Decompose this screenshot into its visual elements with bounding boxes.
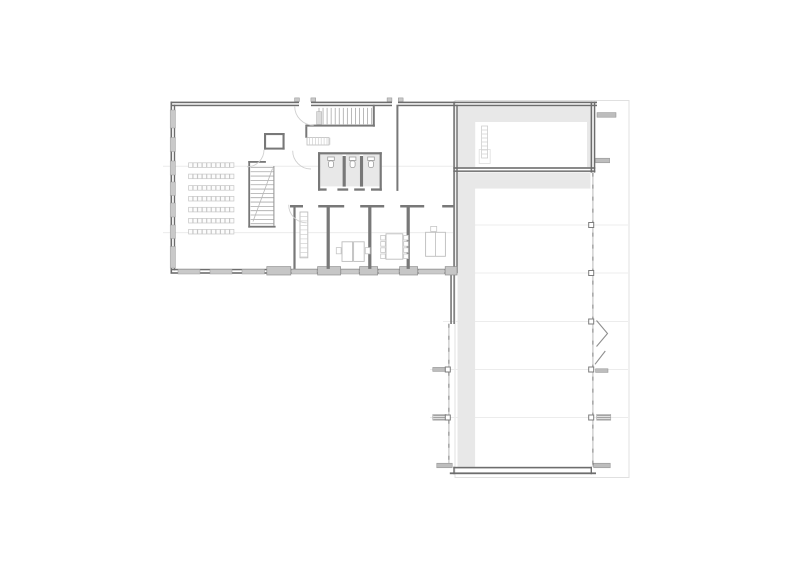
facade-pier-shape: [445, 267, 457, 275]
auditorium-seat-row-shape: [230, 229, 234, 234]
auditorium-seat-row-shape: [207, 196, 211, 201]
auditorium-seat-row-shape: [221, 186, 225, 191]
exterior-wall-shape: [450, 472, 596, 474]
auditorium-seat-row-shape: [221, 207, 225, 212]
exterior-wall-shape: [450, 271, 452, 324]
auditorium-seat-row-shape: [212, 196, 216, 201]
auditorium-seat-row-shape: [216, 174, 220, 179]
interior-wall-shape: [373, 105, 375, 127]
exterior-wall-shape: [398, 102, 597, 104]
interior-wall-shape: [318, 188, 327, 190]
floor-plan-page: [0, 0, 800, 566]
auditorium-seat-row-shape: [216, 218, 220, 223]
structural-column-shape: [589, 319, 594, 324]
interior-wall-shape: [360, 205, 384, 208]
auditorium-seat-row-shape: [216, 207, 220, 212]
interior-wall-shape: [318, 152, 320, 191]
auditorium-seat-row-shape: [207, 218, 211, 223]
auditorium-seat-row-shape: [202, 207, 206, 212]
interior-wall-shape: [248, 161, 250, 228]
auditorium-seat-row: [189, 163, 234, 234]
auditorium-seat-row-shape: [207, 229, 211, 234]
auditorium-seat-row-shape: [198, 218, 202, 223]
interior-wall-shape: [318, 152, 382, 154]
exterior-wall-shape: [453, 167, 595, 169]
auditorium-seat-row-shape: [202, 174, 206, 179]
auditorium-seat-row-shape: [221, 218, 225, 223]
facade-stub-shape: [597, 113, 616, 118]
auditorium-seat-row-shape: [221, 196, 225, 201]
exterior-wall-shape: [453, 271, 454, 324]
exterior-wall-shape: [311, 102, 392, 104]
toilet-tank: [328, 157, 375, 160]
auditorium-seat-row-shape: [221, 163, 225, 168]
interior-wall-shape: [318, 205, 344, 208]
auditorium-seat-row-shape: [221, 229, 225, 234]
interior-wall-shape: [343, 156, 346, 187]
auditorium-seat-row-shape: [230, 196, 234, 201]
stair-newel-shape: [317, 112, 322, 125]
toilet-bowl-shape: [329, 161, 334, 168]
auditorium-seat-row-shape: [193, 196, 197, 201]
furniture-shape: [354, 242, 365, 262]
auditorium-seat-row-shape: [193, 186, 197, 191]
auditorium-seat-row-shape: [230, 186, 234, 191]
floor-shading-inset: [475, 122, 587, 167]
auditorium-seat-row-shape: [202, 163, 206, 168]
auditorium-seat-row-shape: [230, 218, 234, 223]
auditorium-seat-row-shape: [212, 207, 216, 212]
auditorium-seat-row-shape: [189, 186, 193, 191]
facade-stub-shape: [437, 463, 452, 468]
exterior-wall-shape: [453, 102, 455, 274]
auditorium-seat-row-shape: [230, 207, 234, 212]
chair-shape: [381, 242, 386, 247]
facade-stub-shape: [433, 367, 445, 371]
interior-wall-shape: [290, 205, 303, 208]
structural-column-shape: [589, 367, 594, 372]
auditorium-seat-row-shape: [225, 174, 229, 179]
door-swing-arc: [247, 106, 314, 223]
furniture-shape: [342, 242, 353, 262]
auditorium-seat-row-shape: [212, 218, 216, 223]
window-shape: [419, 269, 445, 274]
auditorium-seat-row-shape: [189, 163, 193, 168]
structural-column-shape: [445, 415, 450, 420]
auditorium-seat-row-shape: [225, 163, 229, 168]
auditorium-seat-row-shape: [202, 229, 206, 234]
auditorium-seat-row-shape: [221, 174, 225, 179]
chair-shape: [404, 254, 409, 259]
auditorium-seat-row-shape: [230, 163, 234, 168]
window-shape: [379, 269, 400, 274]
window-shape: [292, 269, 318, 274]
window-shape: [170, 182, 175, 196]
exterior-wall-shape: [453, 467, 592, 469]
floor-shading-shape: [458, 189, 476, 467]
exterior-wall-shape: [591, 102, 593, 173]
auditorium-seat-row-shape: [189, 218, 193, 223]
interior-wall-shape: [337, 188, 348, 190]
stair-newel: [317, 112, 322, 125]
entrance-tab-shape: [398, 98, 403, 102]
window-shape: [170, 247, 175, 269]
interior-wall-shape: [264, 133, 285, 135]
toilet-tank-shape: [349, 157, 356, 160]
auditorium-seat-row-shape: [189, 174, 193, 179]
interior-wall-shape: [368, 208, 371, 269]
door-leaf-diagonal-shape: [595, 351, 605, 364]
structural-column-shape: [445, 367, 450, 372]
chair-shape: [381, 254, 386, 259]
auditorium-seat-row-shape: [198, 163, 202, 168]
window-shape: [170, 225, 175, 239]
interior-wall-shape: [380, 152, 382, 191]
auditorium-seat-row-shape: [198, 174, 202, 179]
entrance-tab-shape: [387, 98, 392, 102]
auditorium-seat-row-shape: [212, 174, 216, 179]
auditorium-seat-row-shape: [225, 196, 229, 201]
interior-wall-shape: [396, 105, 398, 191]
auditorium-seat-row-shape: [198, 229, 202, 234]
exterior-wall-shape: [171, 105, 300, 107]
toilet-tank-shape: [368, 157, 375, 160]
structural-column-shape: [589, 223, 594, 228]
auditorium-seat-row-shape: [202, 218, 206, 223]
window-shape: [170, 203, 175, 217]
auditorium-seat-row-shape: [230, 174, 234, 179]
facade-pier-shape: [267, 267, 291, 275]
floor-shading-shape: [458, 172, 591, 188]
window-shape: [170, 110, 175, 128]
auditorium-seat-row-shape: [193, 207, 197, 212]
auditorium-seat-row-shape: [216, 186, 220, 191]
chair-shape: [336, 248, 341, 254]
structural-column-shape: [589, 415, 594, 420]
auditorium-seat-row-shape: [198, 186, 202, 191]
exterior-wall-shape: [453, 170, 595, 172]
auditorium-seat-row-shape: [225, 218, 229, 223]
entrance-tab: [295, 98, 403, 102]
auditorium-seat-row-shape: [207, 163, 211, 168]
auditorium-seat-row-shape: [193, 163, 197, 168]
auditorium-seat-row-shape: [212, 229, 216, 234]
interior-wall-shape: [305, 127, 307, 138]
chair-shape: [404, 235, 409, 240]
facade-stub-shape: [595, 158, 609, 163]
interior-wall-shape: [248, 226, 275, 228]
chair-shape: [381, 248, 386, 253]
interior-wall-shape: [371, 188, 382, 190]
auditorium-seat-row-shape: [207, 186, 211, 191]
auditorium-seat-row-shape: [189, 229, 193, 234]
interior-wall-shape: [264, 148, 285, 150]
exterior-wall-shape: [456, 105, 457, 274]
interior-wall-shape: [354, 188, 365, 190]
auditorium-seat-row-shape: [225, 207, 229, 212]
auditorium-seat-row-shape: [193, 229, 197, 234]
folding-door-chevron: [597, 321, 608, 347]
auditorium-seat-row-shape: [212, 163, 216, 168]
window-shape: [341, 269, 359, 274]
auditorium-seat-row-shape: [202, 196, 206, 201]
floor-shading-inset-shape: [475, 122, 587, 167]
entrance-tab-shape: [295, 98, 300, 102]
auditorium-seat-row-shape: [216, 229, 220, 234]
auditorium-seat-row-shape: [216, 163, 220, 168]
auditorium-seat-row-shape: [198, 196, 202, 201]
interior-wall-shape: [283, 133, 285, 150]
auditorium-seat-row-shape: [198, 207, 202, 212]
exterior-wall-shape: [311, 105, 392, 107]
toilet-bowl-shape: [369, 161, 374, 168]
building-floor-plan: [0, 0, 800, 566]
structural-column-shape: [589, 271, 594, 276]
exterior-wall-shape: [398, 105, 597, 107]
interior-wall-shape: [305, 125, 375, 127]
auditorium-seat-row-shape: [193, 174, 197, 179]
chair-shape: [365, 248, 370, 254]
auditorium-seat-row-shape: [207, 207, 211, 212]
window-shape: [210, 269, 232, 274]
auditorium-seat-row-shape: [202, 186, 206, 191]
window-shape: [170, 161, 175, 175]
furniture-shape: [300, 212, 308, 258]
toilet-tank-shape: [328, 157, 335, 160]
interior-wall-shape: [248, 161, 266, 163]
furniture-shape: [386, 234, 403, 259]
chair-shape: [404, 242, 409, 247]
auditorium-seat-row-shape: [212, 186, 216, 191]
chair-shape: [404, 248, 409, 253]
window-shape: [242, 269, 265, 274]
facade-stub-shape: [594, 463, 611, 468]
interior-wall-shape: [264, 133, 266, 150]
folding-door-chevron-shape: [597, 321, 608, 347]
door-leaf-diagonal: [595, 351, 605, 364]
exterior-wall-shape: [594, 102, 596, 173]
faint-grid-line: [163, 166, 628, 417]
interior-wall-shape: [327, 208, 330, 269]
exterior-wall-shape: [171, 102, 300, 104]
auditorium-seat-row-shape: [207, 174, 211, 179]
exterior-wall-shape: [591, 467, 592, 474]
auditorium-seat-row-shape: [216, 196, 220, 201]
window-shape: [178, 269, 200, 274]
facade-stub-shape: [596, 369, 608, 373]
interior-wall-shape: [442, 205, 453, 208]
auditorium-seat-row-shape: [225, 186, 229, 191]
stair-treads-upper: [319, 108, 372, 124]
toilet-bowl-shape: [350, 161, 355, 168]
door-swing-arc-shape: [295, 106, 314, 125]
entrance-tab-shape: [311, 98, 316, 102]
window-shape: [170, 138, 175, 152]
auditorium-seat-row-shape: [189, 196, 193, 201]
chair-shape: [431, 226, 437, 231]
interior-wall-shape: [400, 205, 424, 208]
auditorium-seat-row-shape: [225, 229, 229, 234]
furniture: [300, 212, 445, 261]
auditorium-seat-row-shape: [193, 218, 197, 223]
interior-wall-shape: [360, 156, 363, 187]
chair-shape: [381, 235, 386, 240]
exterior-wall-shape: [453, 467, 454, 474]
auditorium-seat-row-shape: [189, 207, 193, 212]
